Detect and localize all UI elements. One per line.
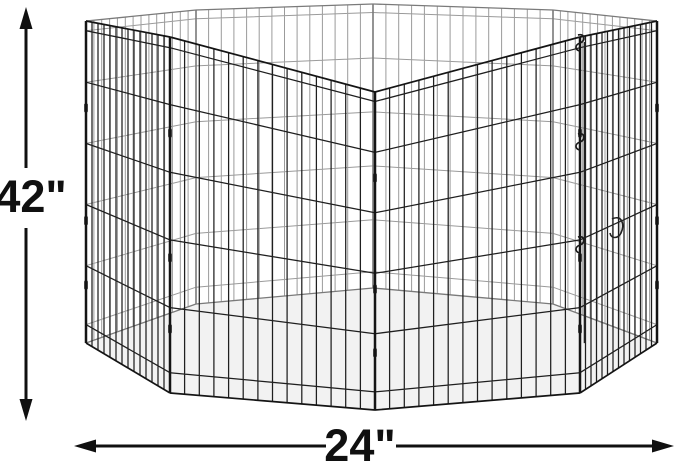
height-dimension: 42" — [0, 7, 67, 421]
panel-connector-clip-icon — [168, 253, 172, 262]
width-dimension: 24" — [74, 420, 674, 467]
pen-illustration: 42" 24" — [0, 0, 679, 467]
panel-connector-clip-icon — [373, 348, 377, 357]
panel-connector-clip-icon — [655, 103, 659, 112]
pen-panel-mesh — [580, 22, 657, 389]
pen-panel-mesh — [86, 22, 170, 389]
panel-connector-clip-icon — [578, 324, 582, 333]
panel-connector-clip-icon — [655, 216, 659, 225]
width-arrow-right-icon — [652, 440, 674, 453]
product-dimension-diagram: 42" 24" — [0, 0, 679, 467]
panel-connector-clip-icon — [84, 281, 88, 290]
panel-connector-clip-icon — [373, 173, 377, 182]
panel-connector-clip-icon — [168, 129, 172, 138]
height-dimension-label: 42" — [0, 171, 67, 222]
width-arrow-left-icon — [74, 440, 96, 453]
panel-connector-clip-icon — [84, 216, 88, 225]
pen-panel-mesh — [553, 11, 657, 340]
height-arrow-down-icon — [20, 399, 33, 421]
panel-connector-clip-icon — [84, 103, 88, 112]
panel-connector-clip-icon — [373, 285, 377, 294]
panel-connector-clip-icon — [168, 324, 172, 333]
pen-panel-mesh — [86, 11, 196, 340]
panel-connector-clip-icon — [578, 253, 582, 262]
panel-connector-clip-icon — [655, 281, 659, 290]
width-dimension-label: 24" — [324, 420, 395, 467]
height-arrow-up-icon — [20, 7, 33, 29]
